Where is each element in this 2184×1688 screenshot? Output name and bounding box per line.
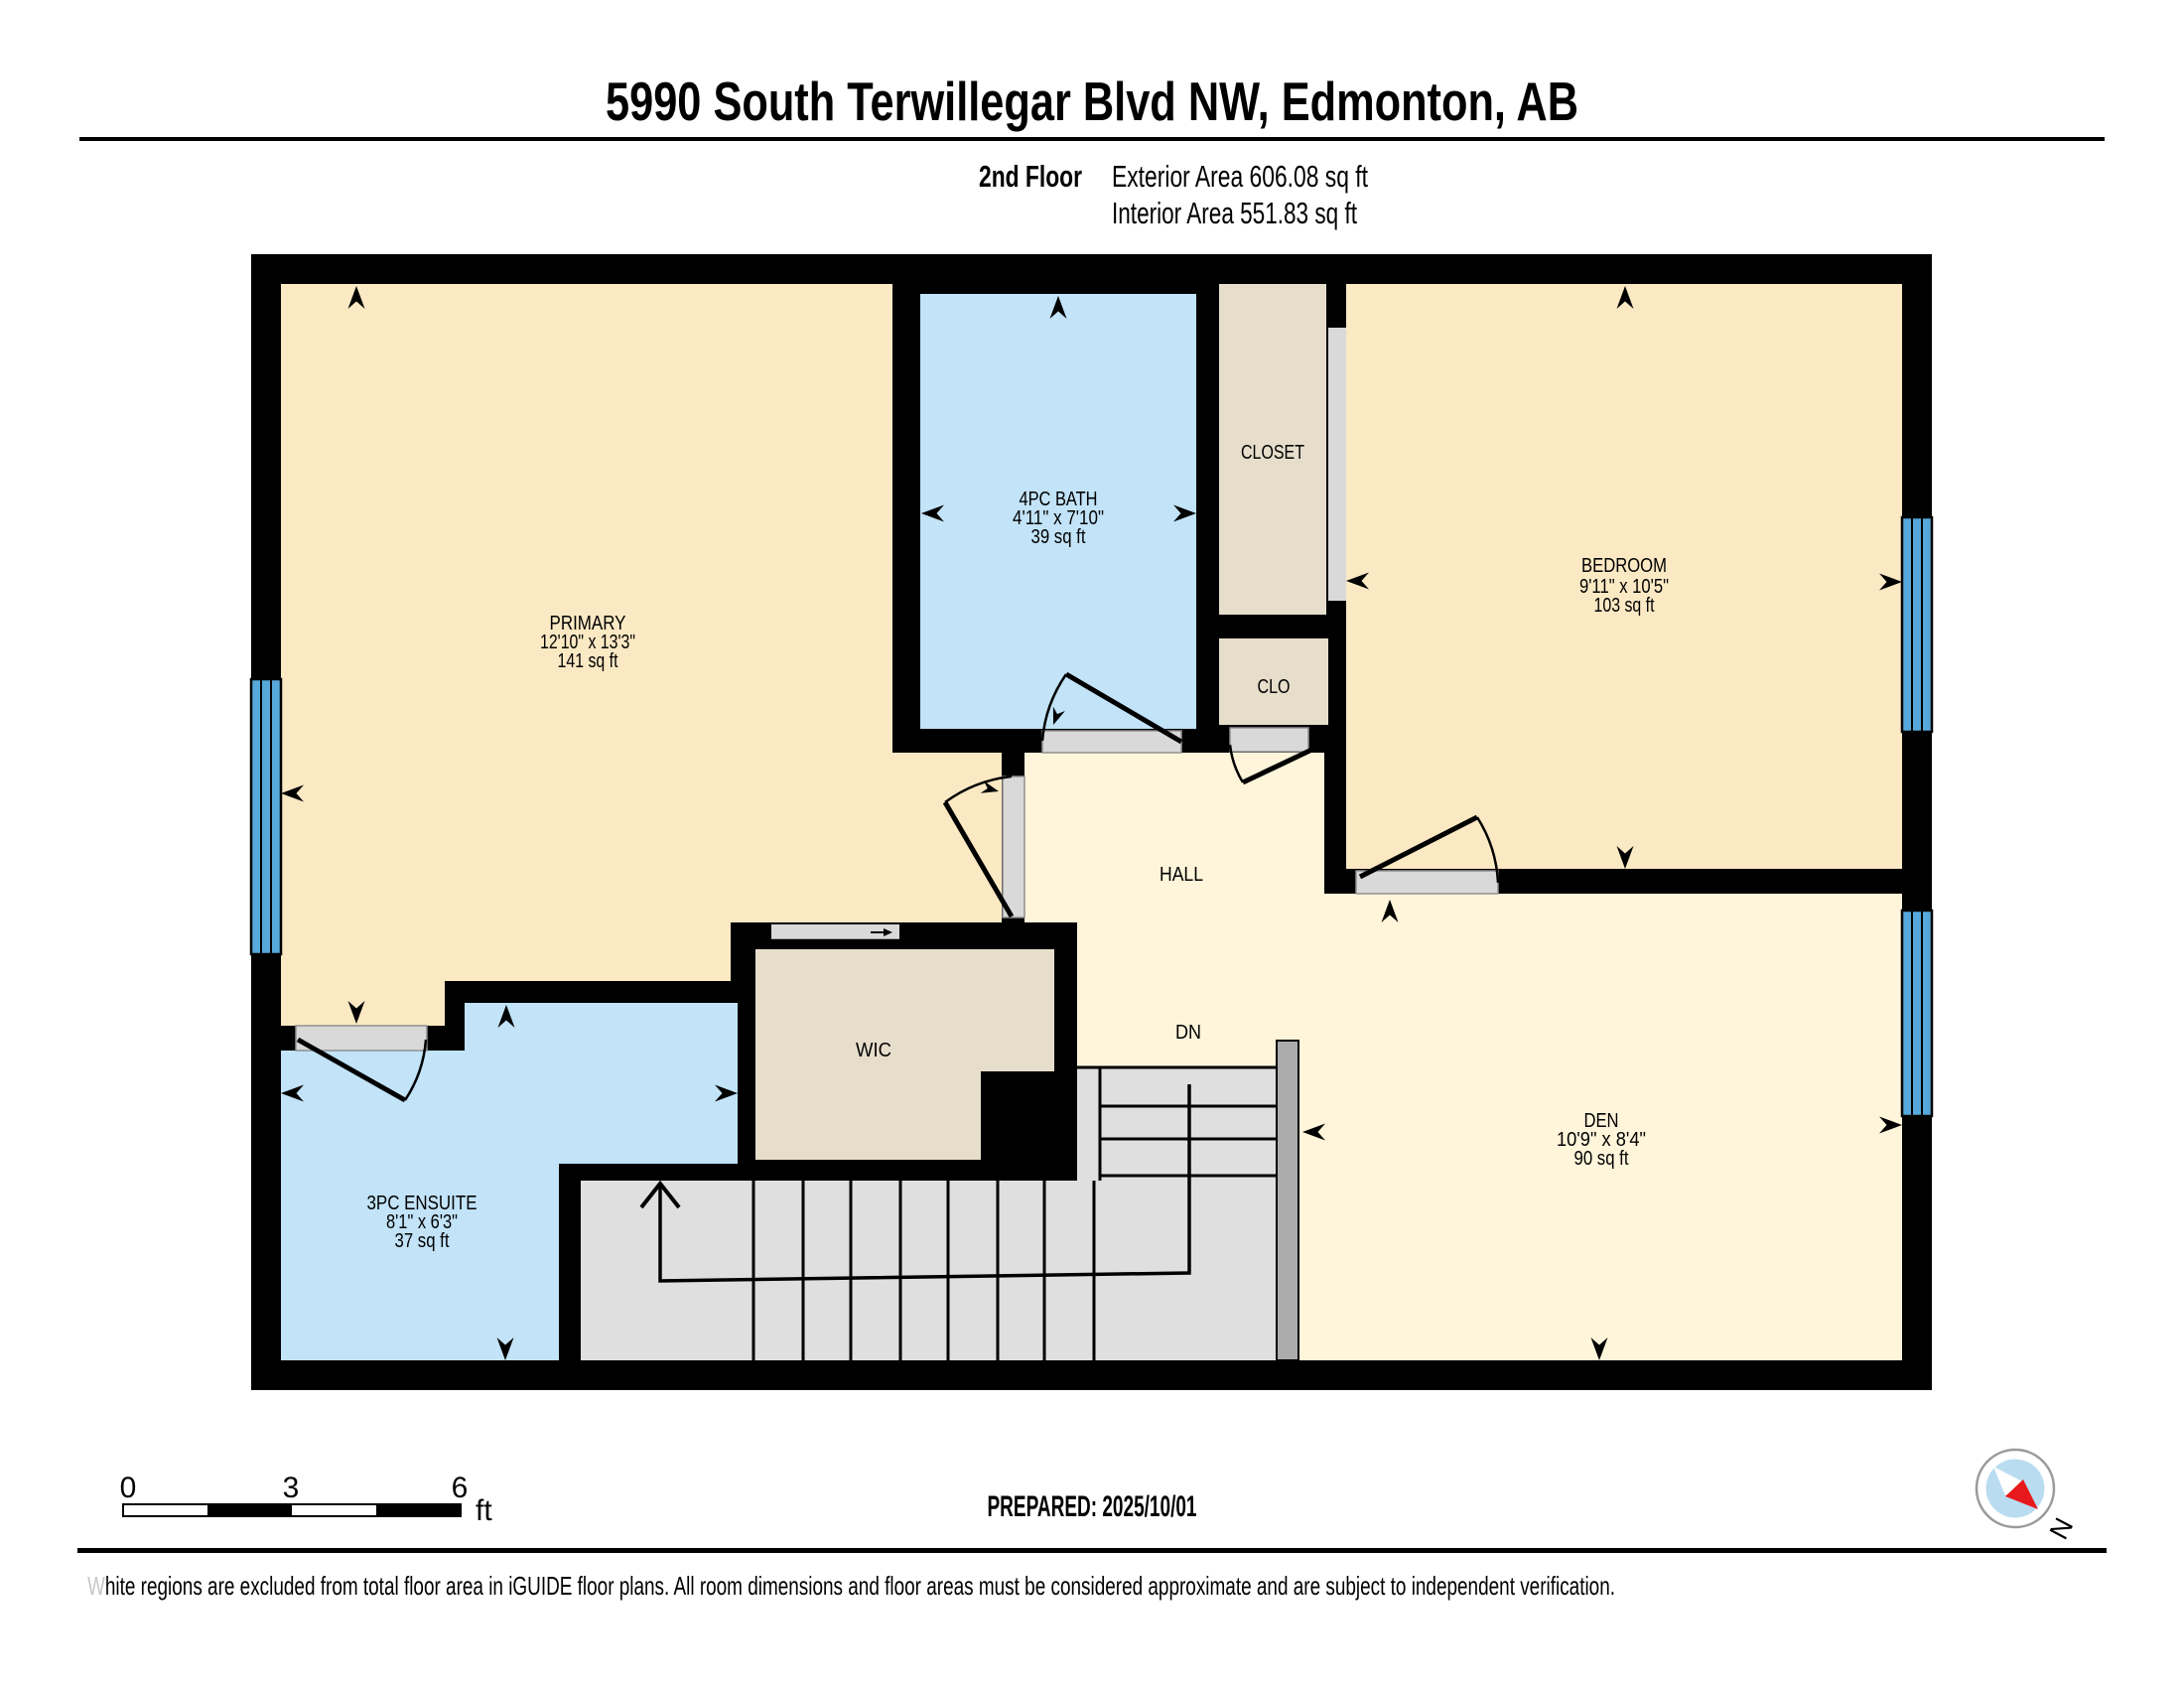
svg-text:6: 6 xyxy=(452,1472,469,1504)
svg-text:BEDROOM: BEDROOM xyxy=(1581,555,1667,577)
svg-text:39 sq ft: 39 sq ft xyxy=(1031,526,1086,548)
svg-text:Interior Area 551.83 sq ft: Interior Area 551.83 sq ft xyxy=(1112,196,1357,230)
svg-text:PREPARED: 2025/10/01: PREPARED: 2025/10/01 xyxy=(988,1490,1197,1523)
svg-text:141 sq ft: 141 sq ft xyxy=(558,650,618,672)
svg-text:CLOSET: CLOSET xyxy=(1241,442,1304,464)
svg-text:DN: DN xyxy=(1175,1022,1201,1044)
svg-text:103 sq ft: 103 sq ft xyxy=(1594,595,1655,617)
svg-text:WIC: WIC xyxy=(856,1040,891,1061)
svg-text:37 sq ft: 37 sq ft xyxy=(395,1230,450,1252)
svg-text:90 sq ft: 90 sq ft xyxy=(1574,1148,1629,1170)
svg-text:Exterior Area 606.08 sq ft: Exterior Area 606.08 sq ft xyxy=(1112,159,1368,194)
svg-text:0: 0 xyxy=(120,1472,137,1504)
svg-text:3: 3 xyxy=(283,1472,300,1504)
svg-text:White regions are excluded fro: White regions are excluded from total fl… xyxy=(87,1571,1615,1601)
svg-text:CLO: CLO xyxy=(1258,676,1291,698)
svg-text:2nd Floor: 2nd Floor xyxy=(979,159,1082,194)
svg-text:HALL: HALL xyxy=(1160,864,1203,886)
svg-text:5990 South Terwillegar Blvd NW: 5990 South Terwillegar Blvd NW, Edmonton… xyxy=(606,70,1578,132)
svg-text:ft: ft xyxy=(476,1494,492,1527)
